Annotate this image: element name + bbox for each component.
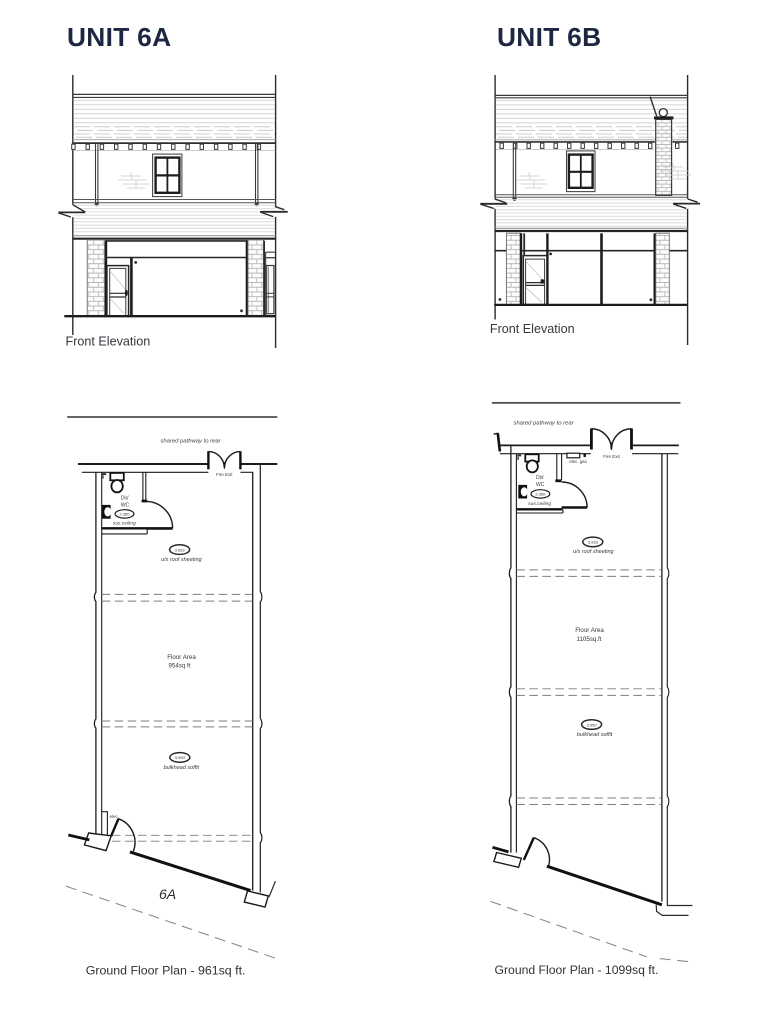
svg-text:WC: WC [536, 482, 545, 488]
svg-text:bulkhead soffit: bulkhead soffit [164, 765, 200, 771]
svg-text:Ground Floor Plan - 1099sq ft.: Ground Floor Plan - 1099sq ft. [495, 963, 659, 977]
svg-text:6A: 6A [159, 886, 176, 902]
svg-text:954sq ft: 954sq ft [168, 663, 190, 670]
svg-text:3.950: 3.950 [175, 755, 186, 760]
svg-text:WC: WC [121, 503, 130, 509]
svg-text:3.950: 3.950 [587, 722, 598, 727]
svg-text:Dis': Dis' [121, 496, 129, 502]
svg-text:sus.ceiling: sus.ceiling [113, 521, 136, 527]
svg-text:3.933: 3.933 [175, 547, 186, 552]
svg-text:2.350: 2.350 [535, 492, 546, 497]
svg-text:elec.: elec. [110, 814, 119, 819]
svg-text:sus.ceiling: sus.ceiling [528, 501, 551, 507]
svg-text:shared pathway to rear: shared pathway to rear [513, 420, 574, 426]
svg-text:u/s roof sheeting: u/s roof sheeting [161, 557, 203, 563]
svg-text:Ground Floor Plan - 961sq ft.: Ground Floor Plan - 961sq ft. [86, 963, 246, 977]
svg-text:shared pathway to rear: shared pathway to rear [160, 439, 221, 445]
svg-text:1105sq.ft: 1105sq.ft [577, 636, 602, 643]
svg-text:Floor Area: Floor Area [575, 627, 604, 634]
svg-text:Fire Exit: Fire Exit [603, 454, 620, 459]
svg-text:elec. gas: elec. gas [569, 459, 587, 464]
svg-text:Front Elevation: Front Elevation [490, 322, 575, 336]
svg-text:UNIT 6A: UNIT 6A [67, 22, 171, 52]
svg-text:Fire Exit: Fire Exit [216, 472, 233, 477]
svg-text:Dis': Dis' [536, 475, 544, 481]
svg-text:2.350: 2.350 [119, 512, 130, 517]
svg-text:3.933: 3.933 [588, 540, 599, 545]
svg-text:bulkhead soffit: bulkhead soffit [577, 732, 613, 738]
svg-text:Front Elevation: Front Elevation [66, 334, 151, 348]
svg-text:Floor Area: Floor Area [167, 654, 196, 661]
svg-text:u/s roof sheeting: u/s roof sheeting [573, 549, 615, 555]
svg-text:UNIT 6B: UNIT 6B [497, 22, 601, 52]
